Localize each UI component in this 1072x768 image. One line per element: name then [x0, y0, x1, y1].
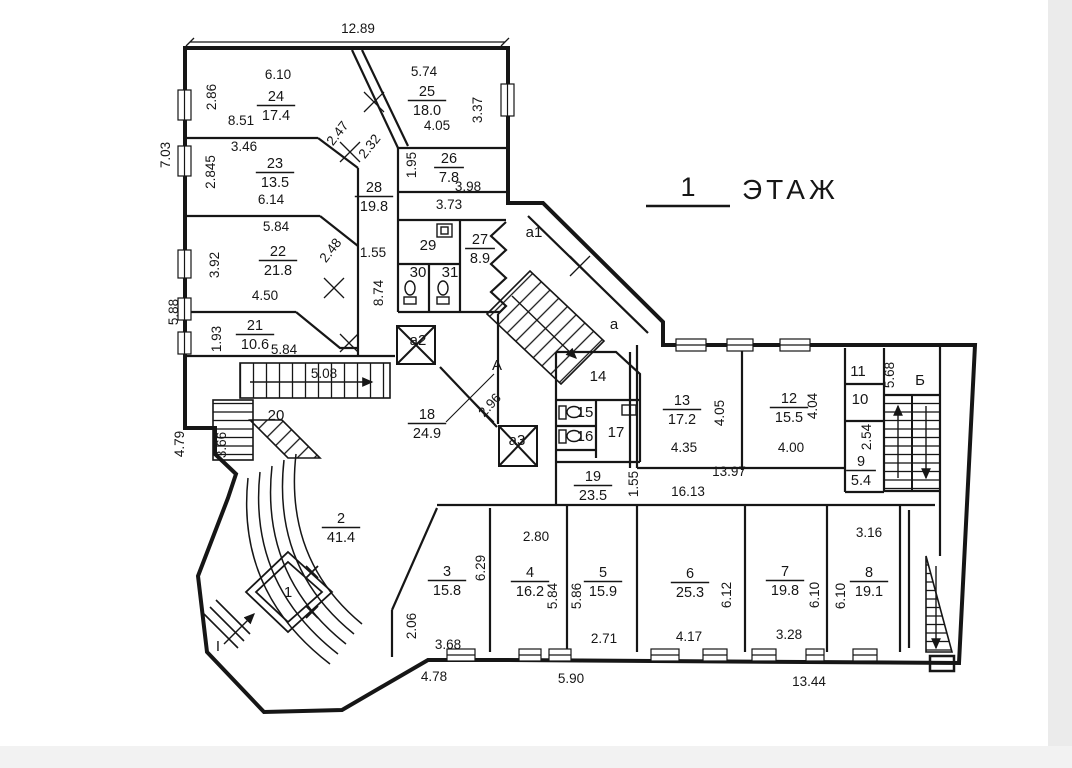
- zone-label: а1: [526, 224, 543, 241]
- dimension-label: 3.16: [856, 525, 882, 540]
- room-area: 15.5: [775, 410, 803, 426]
- room-number: 23: [267, 156, 283, 172]
- sink-29: [437, 224, 452, 237]
- room-number: 9: [857, 454, 865, 470]
- dimension-label: 4.17: [676, 629, 702, 644]
- dimension-label: 6.29: [473, 555, 488, 581]
- room-label: 241.4: [322, 511, 360, 546]
- stair-20-diagonal-flight: [250, 420, 320, 458]
- room-number: 21: [247, 318, 263, 334]
- dimension-label: 4.04: [805, 392, 820, 419]
- dimension-label: 4.05: [712, 400, 727, 426]
- dimension-label: 3.37: [470, 97, 485, 123]
- dimension-label: 6.14: [258, 192, 285, 207]
- floor-title-word: ЭТАЖ: [742, 174, 839, 205]
- zone-label: 10: [852, 391, 869, 408]
- room-label: 1923.5: [574, 469, 612, 504]
- room-area: 19.8: [360, 199, 388, 215]
- room-area: 17.4: [262, 108, 290, 124]
- room-label: 819.1: [850, 565, 888, 600]
- dimension-label: 3.68: [435, 637, 461, 652]
- dimension-label: 1.55: [626, 471, 641, 497]
- entrance-arrow: [224, 614, 254, 644]
- dimension-label: 3.66: [214, 432, 229, 458]
- zone-label: а2: [410, 332, 427, 349]
- zone-label: 14: [590, 368, 607, 385]
- zone-label: 31: [442, 264, 459, 281]
- room-number: 22: [270, 244, 286, 260]
- room-area: 19.8: [771, 583, 799, 599]
- dimension-label: 8.74: [371, 279, 386, 306]
- room-label: 95.4: [846, 454, 876, 489]
- floor-plan-canvas: 1 ЭТАЖ 2417.42313.52518.0267.82819.8278.…: [0, 0, 1072, 768]
- room-label: 515.9: [584, 565, 622, 600]
- zone-label: 1: [284, 584, 292, 601]
- dimension-label: 2.54: [859, 423, 874, 450]
- zone-label: 29: [420, 237, 437, 254]
- room-number: 28: [366, 180, 382, 196]
- dimension-label: 5.84: [263, 219, 290, 234]
- dimension-label: 2.06: [404, 613, 419, 639]
- room-label: 719.8: [766, 564, 804, 599]
- zone-label: I: [216, 638, 220, 655]
- room-number: 7: [781, 564, 789, 580]
- room-area: 8.9: [470, 251, 490, 267]
- room-area: 5.4: [851, 473, 871, 489]
- room-number: 4: [526, 565, 534, 581]
- scan-edge-right: [1048, 0, 1072, 768]
- dimension-label: 4.79: [172, 431, 187, 457]
- room-number: 25: [419, 84, 435, 100]
- zone-label: А: [492, 357, 502, 374]
- dimension-label: 5.68: [882, 362, 897, 388]
- room-number: 3: [443, 564, 451, 580]
- dimension-label: 1.93: [209, 326, 224, 352]
- room-label: 1824.9: [408, 407, 446, 442]
- dimension-label: 3.28: [776, 627, 802, 642]
- room-number: 27: [472, 232, 488, 248]
- room-area: 25.3: [676, 585, 704, 601]
- dimension-line-top: [186, 38, 509, 46]
- room-area: 24.9: [413, 426, 441, 442]
- room-area: 18.0: [413, 103, 441, 119]
- dimension-label: 1.55: [360, 245, 386, 260]
- room-label: 278.9: [465, 232, 495, 267]
- dimension-label: 6.10: [833, 583, 848, 609]
- room-label: 416.2: [511, 565, 549, 600]
- dimension-label: 5.84: [545, 582, 560, 609]
- dimension-label: 4.50: [252, 288, 278, 303]
- room-area: 16.2: [516, 584, 544, 600]
- dimension-label: 4.05: [424, 118, 450, 133]
- room-label: 2518.0: [408, 84, 446, 119]
- dimension-label: 2.32: [355, 131, 383, 161]
- room-number: 6: [686, 566, 694, 582]
- room-number: 26: [441, 151, 457, 167]
- dimension-label: 6.10: [807, 582, 822, 608]
- zone-label: 17: [608, 424, 625, 441]
- room-number: 18: [419, 407, 435, 423]
- dimension-label: 2.845: [203, 155, 218, 189]
- room-area: 10.6: [241, 337, 269, 353]
- room-area: 15.8: [433, 583, 461, 599]
- room-area: 23.5: [579, 488, 607, 504]
- room-area: 41.4: [327, 530, 355, 546]
- scan-edge-bottom: [0, 746, 1072, 768]
- room-area: 19.1: [855, 584, 883, 600]
- title-block: 1 ЭТАЖ: [646, 172, 839, 206]
- dimension-label: 4.00: [778, 440, 804, 455]
- room-number: 19: [585, 469, 601, 485]
- dimension-label: 2.48: [316, 235, 344, 265]
- room-label: 625.3: [671, 566, 709, 601]
- dimension-label: 2.80: [523, 529, 549, 544]
- room-label: 1317.2: [663, 393, 701, 428]
- room-number: 12: [781, 391, 797, 407]
- room-label: 2819.8: [355, 180, 393, 215]
- dimension-label: 4.78: [421, 669, 447, 684]
- room-label: 2417.4: [257, 89, 295, 124]
- dimension-label: 12.89: [341, 21, 375, 36]
- zone-label: а3: [509, 432, 526, 449]
- dimension-label: 3.46: [231, 139, 257, 154]
- zone-label: 11: [850, 363, 866, 380]
- dimension-label: 13.44: [792, 674, 826, 689]
- dimension-label: 5.84: [271, 342, 298, 357]
- dimension-label: 2.86: [204, 84, 219, 110]
- room-area: 13.5: [261, 175, 289, 191]
- room-number: 24: [268, 89, 284, 105]
- dimension-label: 5.74: [411, 64, 438, 79]
- dimension-label: 3.98: [455, 179, 481, 194]
- dimension-label: 8.51: [228, 113, 254, 128]
- room-label: 1215.5: [770, 391, 808, 426]
- dimension-label: 13.97: [712, 464, 746, 479]
- dimension-label: 5.86: [569, 583, 584, 609]
- dimension-label: 5.88: [166, 299, 181, 325]
- stair-right-triangle: [926, 556, 952, 652]
- dimension-label: 3.73: [436, 197, 462, 212]
- zone-label: а: [610, 316, 619, 333]
- dimension-label: 6.10: [265, 67, 291, 82]
- room-area: 15.9: [589, 584, 617, 600]
- dimension-label: 2.71: [591, 631, 617, 646]
- dimension-label: 2.47: [323, 118, 351, 148]
- room-number: 13: [674, 393, 690, 409]
- dimension-label: 6.12: [719, 582, 734, 608]
- toilet-31: [437, 281, 449, 304]
- floor-title-number: 1: [680, 172, 695, 202]
- dimension-label: 1.95: [404, 152, 419, 178]
- zone-label: 15: [577, 404, 594, 421]
- dimension-label: 5.08: [311, 366, 337, 381]
- room-label: 315.8: [428, 564, 466, 599]
- dimension-label: 16.13: [671, 484, 705, 499]
- floor-plan-page: 1 ЭТАЖ 2417.42313.52518.0267.82819.8278.…: [0, 0, 1072, 768]
- dimension-label: 4.35: [671, 440, 697, 455]
- zone-label: 16: [577, 428, 594, 445]
- dimension-label: 3.92: [207, 252, 222, 278]
- toilet-30: [404, 281, 416, 304]
- room-label: 2110.6: [236, 318, 274, 353]
- dimension-label: 5.90: [558, 671, 584, 686]
- zone-label: 20: [268, 407, 285, 424]
- room-number: 5: [599, 565, 607, 581]
- room-label: 2313.5: [256, 156, 294, 191]
- lobby-curved-steps: [247, 454, 362, 664]
- dimension-label: 7.03: [158, 142, 173, 168]
- room-area: 21.8: [264, 263, 292, 279]
- dimension-label: 2.96: [475, 390, 504, 420]
- room-number: 8: [865, 565, 873, 581]
- room-number: 2: [337, 511, 345, 527]
- zone-label: 30: [410, 264, 427, 281]
- room-area: 17.2: [668, 412, 696, 428]
- room-label: 2221.8: [259, 244, 297, 279]
- zone-label: Б: [915, 372, 925, 389]
